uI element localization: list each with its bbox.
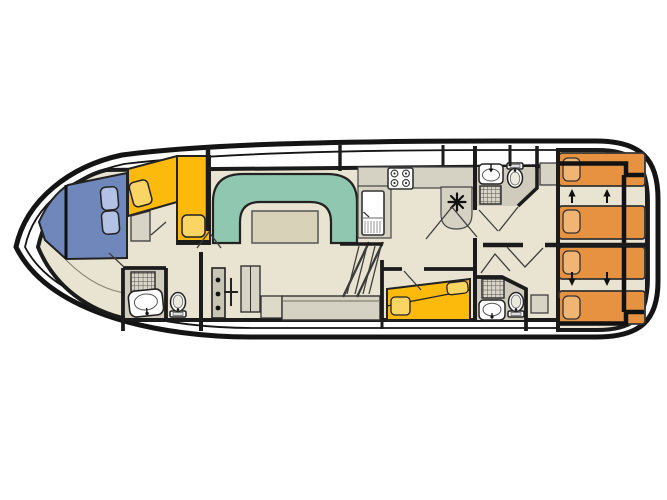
washbasin-icon [479,300,505,320]
pillow [563,296,580,319]
dinette-table [252,211,318,243]
shower-grid-icon [482,279,504,298]
pillow [563,210,580,233]
shower-grid-icon [480,186,501,204]
sideboard [261,296,282,318]
toilet-icon [507,163,523,188]
blue-cushion [101,210,120,234]
washbasin-icon [128,288,165,317]
fridge-icon [362,191,384,235]
wardrobe [241,266,260,312]
step-dot [216,306,221,311]
washbasin-icon [479,164,503,184]
yellow-cushion [182,215,205,237]
blue-cushion [100,186,119,210]
boat-floor-plan [0,0,667,500]
step-dot [216,292,221,297]
bow-step-unit [131,211,150,241]
floor-plan-canvas [0,0,667,500]
bench-counter [282,296,380,320]
pillow [391,297,410,315]
toilet-icon [170,293,186,318]
pillow [563,251,580,274]
counter-top [358,167,474,188]
pillow [446,281,468,295]
toilet-icon [508,293,524,318]
nightstand [540,163,557,185]
step-dot [216,278,221,283]
stove-icon [388,168,413,189]
nightstand [531,295,548,313]
